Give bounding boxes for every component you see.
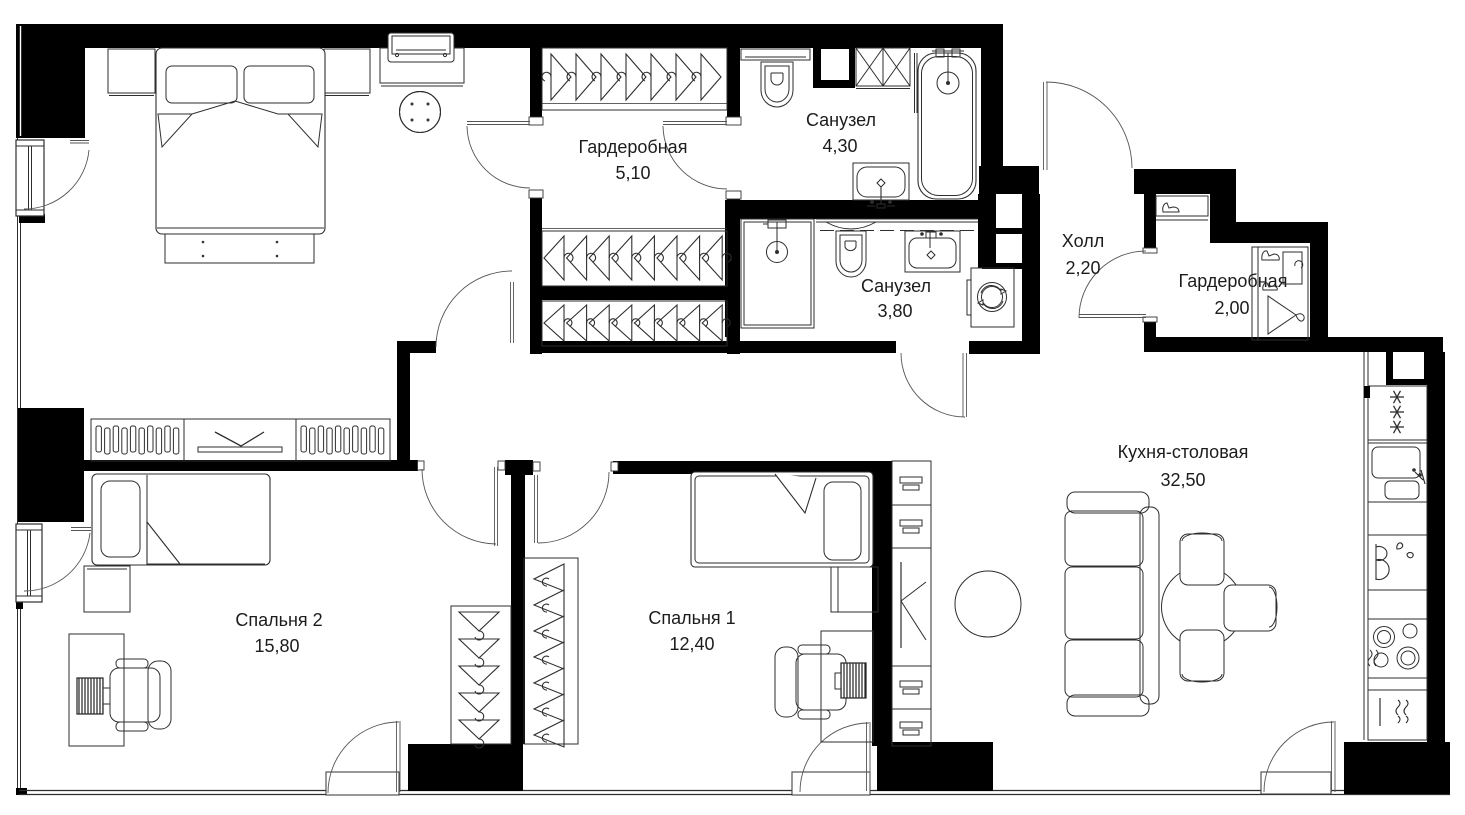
svg-text:Спальня 2: Спальня 2 bbox=[235, 610, 322, 630]
svg-text:Гардеробная: Гардеробная bbox=[1179, 271, 1288, 291]
svg-text:2,20: 2,20 bbox=[1065, 258, 1100, 278]
svg-text:Холл: Холл bbox=[1062, 231, 1104, 251]
svg-text:32,50: 32,50 bbox=[1160, 470, 1205, 490]
svg-text:Кухня-столовая: Кухня-столовая bbox=[1118, 442, 1249, 462]
svg-text:4,30: 4,30 bbox=[822, 136, 857, 156]
svg-text:12,40: 12,40 bbox=[669, 634, 714, 654]
svg-text:3,80: 3,80 bbox=[877, 301, 912, 321]
svg-text:Санузел: Санузел bbox=[861, 276, 931, 296]
svg-text:15,80: 15,80 bbox=[254, 636, 299, 656]
svg-text:2,00: 2,00 bbox=[1214, 298, 1249, 318]
svg-text:Санузел: Санузел bbox=[806, 110, 876, 130]
svg-text:Спальня 1: Спальня 1 bbox=[648, 608, 735, 628]
svg-text:5,10: 5,10 bbox=[615, 163, 650, 183]
svg-text:Гардеробная: Гардеробная bbox=[579, 137, 688, 157]
